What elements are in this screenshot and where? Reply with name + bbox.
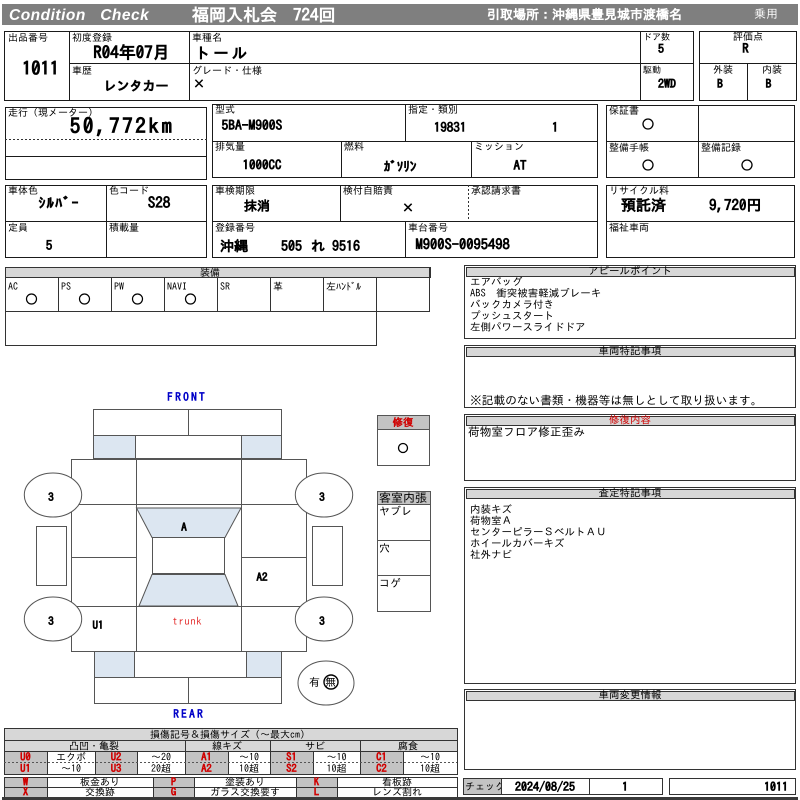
svg-text:Condition Check: Condition Check [9, 7, 150, 24]
